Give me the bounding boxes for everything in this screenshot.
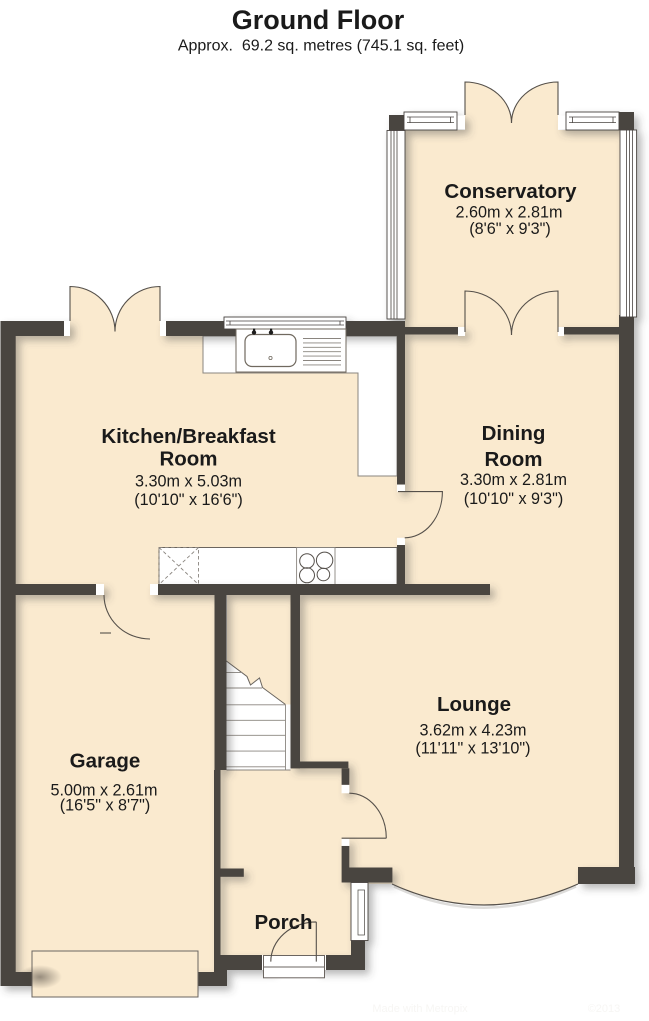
svg-text:3.30m x 5.03m: 3.30m x 5.03m [135, 473, 242, 491]
svg-text:Approx. 69.2 sq. metres (745.: Approx. 69.2 sq. metres (745.1 sq. feet) [178, 38, 464, 55]
svg-text:Room: Room [484, 448, 542, 471]
svg-text:Lounge: Lounge [437, 693, 511, 716]
svg-text:(16'5" x 8'7"): (16'5" x 8'7") [60, 797, 151, 815]
svg-text:Conservatory: Conservatory [444, 180, 577, 203]
svg-text:Made with Metropix: Made with Metropix [372, 1003, 468, 1015]
svg-text:(11'11" x 13'10"): (11'11" x 13'10") [415, 740, 530, 758]
svg-text:3.30m x 2.81m: 3.30m x 2.81m [460, 471, 567, 489]
svg-text:(10'10" x 9'3"): (10'10" x 9'3") [464, 490, 564, 508]
svg-text:Porch: Porch [254, 911, 312, 934]
svg-text:Dining: Dining [482, 422, 546, 445]
svg-text:Garage: Garage [70, 750, 141, 773]
svg-text:Room: Room [159, 448, 217, 471]
svg-text:(10'10" x 16'6"): (10'10" x 16'6") [134, 491, 243, 509]
svg-text:3.62m x 4.23m: 3.62m x 4.23m [419, 722, 526, 740]
svg-text:Ground Floor: Ground Floor [232, 5, 405, 35]
svg-text:©2013: ©2013 [588, 1003, 621, 1015]
svg-text:(8'6" x 9'3"): (8'6" x 9'3") [469, 220, 551, 238]
svg-text:Kitchen/Breakfast: Kitchen/Breakfast [101, 425, 275, 448]
svg-text:2.60m x 2.81m: 2.60m x 2.81m [455, 204, 562, 222]
